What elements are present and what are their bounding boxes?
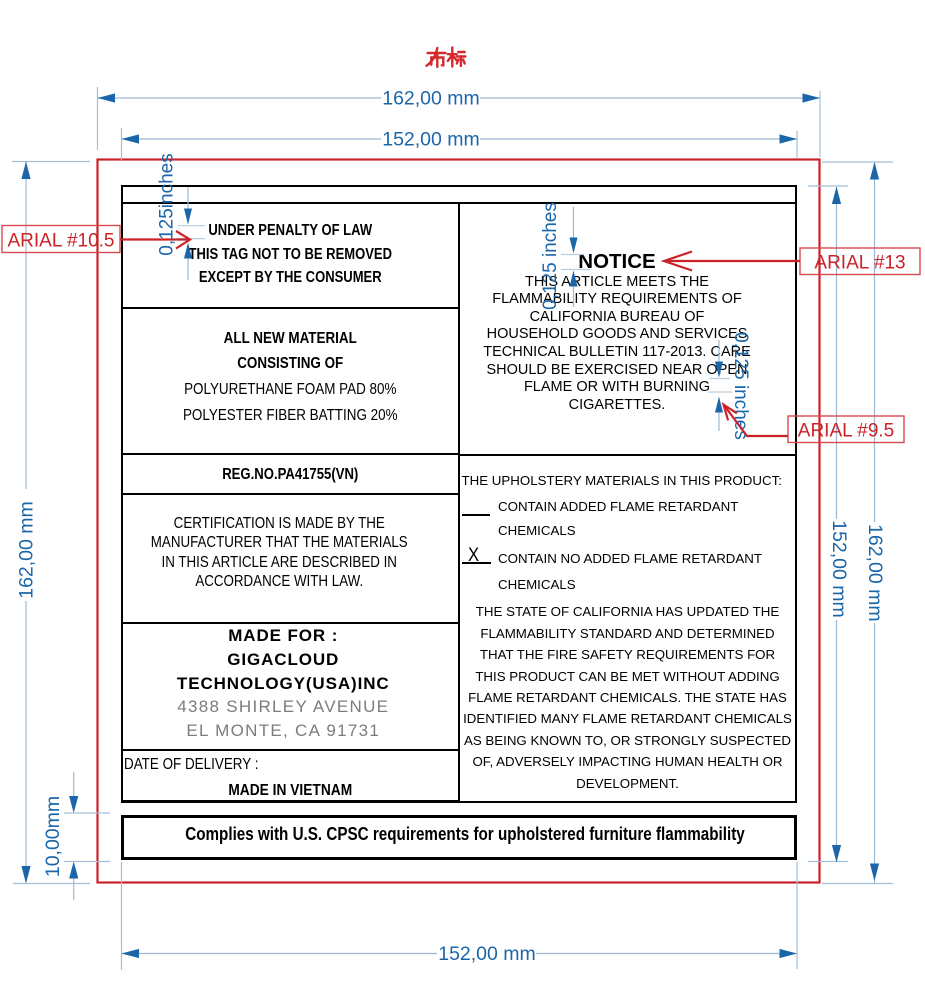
svg-text:152,00 mm: 152,00 mm	[438, 943, 536, 965]
svg-text:162,00 mm: 162,00 mm	[16, 501, 38, 599]
svg-text:ARIAL #9.5: ARIAL #9.5	[798, 421, 894, 442]
svg-text:ARIAL #13: ARIAL #13	[814, 253, 905, 274]
svg-text:162,00 mm: 162,00 mm	[382, 88, 480, 110]
svg-text:0,125 inches: 0,125 inches	[540, 202, 561, 310]
svg-text:ARIAL #10.5: ARIAL #10.5	[7, 231, 114, 252]
svg-text:0,125 inches: 0,125 inches	[730, 332, 751, 440]
svg-text:10,00mm: 10,00mm	[42, 796, 64, 877]
svg-text:162,00 mm: 162,00 mm	[864, 524, 886, 622]
svg-text:152,00 mm: 152,00 mm	[382, 129, 480, 151]
svg-text:152,00 mm: 152,00 mm	[828, 520, 850, 618]
